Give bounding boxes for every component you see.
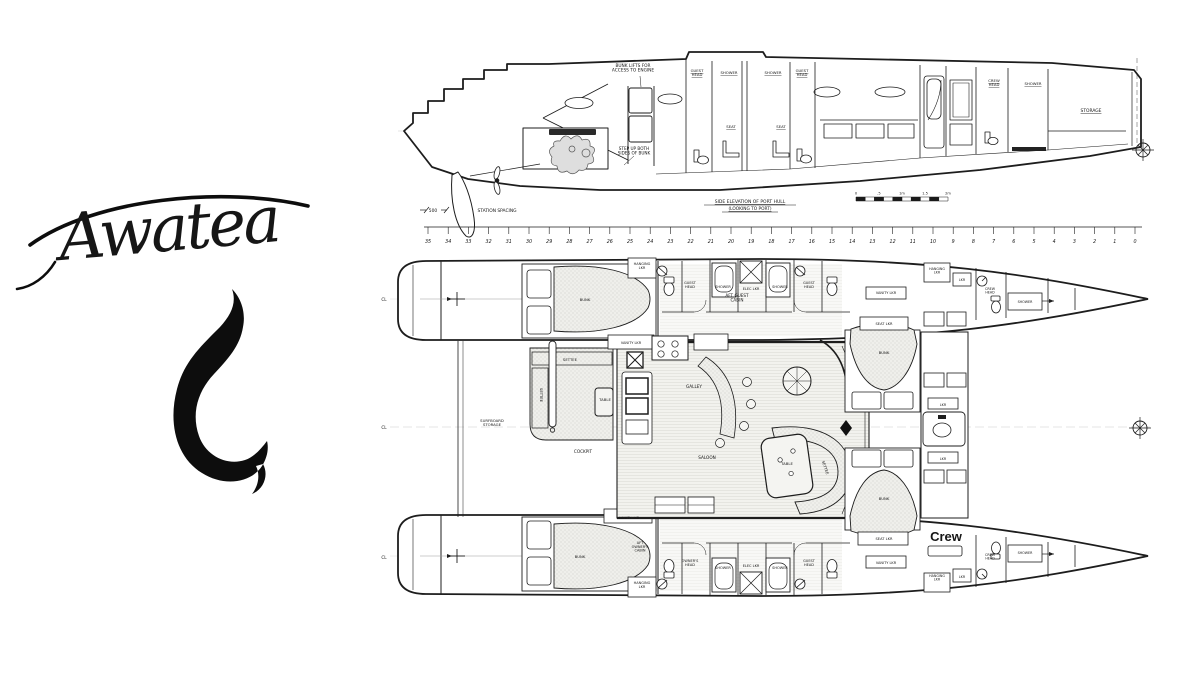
station-number: 14 <box>849 239 855 245</box>
crew-head-label: CREWHEAD <box>988 78 1000 87</box>
galley-label: GALLEY <box>686 384 702 389</box>
scale-bar-segment <box>902 197 911 201</box>
scale-bar-label: 1m <box>899 192 905 196</box>
maori-fish-hook-icon <box>173 289 267 494</box>
station-number: 30 <box>526 239 532 245</box>
station-number: 8 <box>972 239 975 245</box>
note-bunk-lifts: BUNK LIFTS FORACCESS TO ENGINE <box>612 63 655 74</box>
graphic-scale-bar: 0.51m1.52m <box>855 192 952 202</box>
station-number: 27 <box>587 239 593 245</box>
station-number: 11 <box>910 239 916 245</box>
storage-label: STORAGE <box>1081 108 1102 114</box>
engine-room <box>523 128 608 174</box>
station-number: 2 <box>1093 239 1096 245</box>
lkr-label: LKR <box>940 403 947 407</box>
station-number: 22 <box>688 239 694 245</box>
saloon-table <box>760 433 814 499</box>
saloon-area <box>608 334 869 518</box>
awatea-catamaran-blueprint: Awatea <box>0 0 1200 675</box>
seat-lkr-label: SEAT LKR <box>876 537 893 541</box>
scale-bar-label: 0 <box>855 192 858 196</box>
logo: Awatea <box>17 183 308 494</box>
station-ruler: 3534333231302928272625242322212019181716… <box>424 227 1142 245</box>
logo-tail-swash-icon <box>17 262 55 289</box>
station-number: 9 <box>952 239 955 245</box>
crew-head-label: CREWHEAD <box>985 287 996 295</box>
shower-label: SHOWER <box>720 70 737 75</box>
scale-bar-segment <box>930 197 939 201</box>
lkr-label: LKR <box>959 278 966 282</box>
logo-wordmark: Awatea <box>51 183 282 276</box>
surfboard-storage-label: SURFBOARDSTORAGE <box>480 418 504 427</box>
station-number: 1 <box>1113 239 1116 245</box>
elec-lkr-label: ELEC LKR <box>743 287 760 291</box>
cockpit-label: COCKPIT <box>574 449 593 454</box>
seat-lkr-label: SEAT LKR <box>876 322 893 326</box>
shower-label: SHOWER <box>772 566 788 570</box>
centerline-vessel: CL <box>381 425 387 430</box>
stove <box>652 336 688 360</box>
table-label: TABLE <box>598 397 611 402</box>
station-number: 16 <box>809 239 815 245</box>
vanity-lkr-label: VANITY LKR <box>876 291 897 295</box>
round-table <box>783 367 811 395</box>
bunk-label: BUNK <box>575 554 586 559</box>
station-number: 10 <box>930 239 936 245</box>
station-number: 23 <box>667 239 673 245</box>
bunk-label: BUNK <box>879 496 890 501</box>
starboard-hull-plan <box>398 515 1148 597</box>
centerline-starboard: CL <box>381 555 387 560</box>
vanity-lkr-label: VANITY LKR <box>876 561 897 565</box>
lkr-label: LKR <box>959 575 966 579</box>
saloon-label: SALOON <box>698 455 716 460</box>
crew-head-label: CREWHEAD <box>985 553 996 561</box>
station-number: 5 <box>1032 239 1035 245</box>
shower-label: SHOWER <box>715 285 731 289</box>
seat-label: SEAT <box>726 124 736 129</box>
shower-label: SHOWER <box>1018 551 1034 555</box>
centerline-port: CL <box>381 297 387 302</box>
datum-symbol-plan-icon <box>1129 417 1151 439</box>
station-number: 35 <box>425 239 431 245</box>
station-number: 34 <box>445 239 451 245</box>
station-spacing-dim: 500 <box>429 208 438 214</box>
shower-label: SHOWER <box>1024 81 1041 86</box>
station-number: 19 <box>748 239 754 245</box>
guest-head-label: GUESTHEAD <box>684 281 697 289</box>
scale-bar-label: 2m <box>945 192 951 196</box>
station-number: 24 <box>647 239 653 245</box>
deck-plan-drawing: HANGINGLKRBUNKAFT GUESTCABINGUESTHEADSHO… <box>381 258 1151 597</box>
shower-label: SHOWER <box>1018 300 1034 304</box>
elec-lkr-label: ELEC LKR <box>743 564 760 568</box>
lkr-label: LKR <box>940 457 947 461</box>
scale-bar-label: .5 <box>877 192 880 196</box>
scale-bar-segment <box>856 197 865 201</box>
station-number: 25 <box>627 239 633 245</box>
note-step-up: STEP UP BOTHSIDES OF BUNK <box>618 146 651 156</box>
scale-bar-segment <box>884 197 893 201</box>
station-number: 0 <box>1133 239 1136 245</box>
station-number: 3 <box>1073 239 1076 245</box>
station-number: 33 <box>465 239 471 245</box>
station-number: 4 <box>1053 239 1056 245</box>
crew-area-label: Crew <box>930 529 963 544</box>
bunk-label: BUNK <box>580 297 591 302</box>
shower-label: SHOWER <box>772 285 788 289</box>
station-number: 21 <box>708 239 714 245</box>
station-number: 28 <box>566 239 572 245</box>
port-hull-plan <box>398 258 1148 340</box>
station-spacing-label: STATION SPACING <box>477 208 517 214</box>
station-number: 26 <box>607 239 613 245</box>
side-elevation-drawing: 0.51m1.52m BUNK LIFTS FORACCESS TO ENGIN… <box>398 52 1154 237</box>
elevation-caption-2: (LOOKING TO PORT) <box>729 206 772 212</box>
elevation-caption: SIDE ELEVATION OF PORT HULL <box>715 199 786 205</box>
scale-bar-segment <box>865 197 874 201</box>
crew-basin <box>923 412 965 446</box>
mast-post <box>549 341 556 427</box>
scale-bar-segment <box>893 197 902 201</box>
shower-label: SHOWER <box>764 70 781 75</box>
scale-bar-segment <box>920 197 929 201</box>
station-number: 7 <box>992 239 995 245</box>
station-number: 29 <box>546 239 552 245</box>
guest-head-label: GUESTHEAD <box>803 559 816 567</box>
blueprint-svg: Awatea <box>0 0 1200 675</box>
station-number: 20 <box>728 239 734 245</box>
station-number: 13 <box>869 239 875 245</box>
settee-label: SETTEE <box>539 388 544 403</box>
scale-bar-segment <box>874 197 883 201</box>
shower-label: SHOWER <box>715 566 731 570</box>
station-number: 15 <box>829 239 835 245</box>
scale-bar-segment <box>939 197 948 201</box>
bunk-label: BUNK <box>879 350 890 355</box>
station-number: 6 <box>1012 239 1015 245</box>
guest-head-label: GUESTHEAD <box>796 68 810 77</box>
station-number: 32 <box>486 239 492 245</box>
vanity-lkr-label: VANITY LKR <box>621 341 642 345</box>
station-number: 12 <box>890 239 896 245</box>
table-label: TABLE <box>780 461 793 466</box>
station-number: 18 <box>768 239 774 245</box>
guest-head-label: GUESTHEAD <box>691 68 705 77</box>
station-number: 17 <box>789 239 795 245</box>
scale-bar-segment <box>911 197 920 201</box>
vanity-lkr-label: VANITY LKR <box>619 516 640 520</box>
scale-bar-label: 1.5 <box>922 192 928 196</box>
station-number: 31 <box>506 239 512 245</box>
settee-label: SETTEE <box>563 357 578 362</box>
guest-head-label: GUESTHEAD <box>803 281 816 289</box>
seat-label: SEAT <box>776 124 786 129</box>
cockpit-table <box>595 388 613 416</box>
